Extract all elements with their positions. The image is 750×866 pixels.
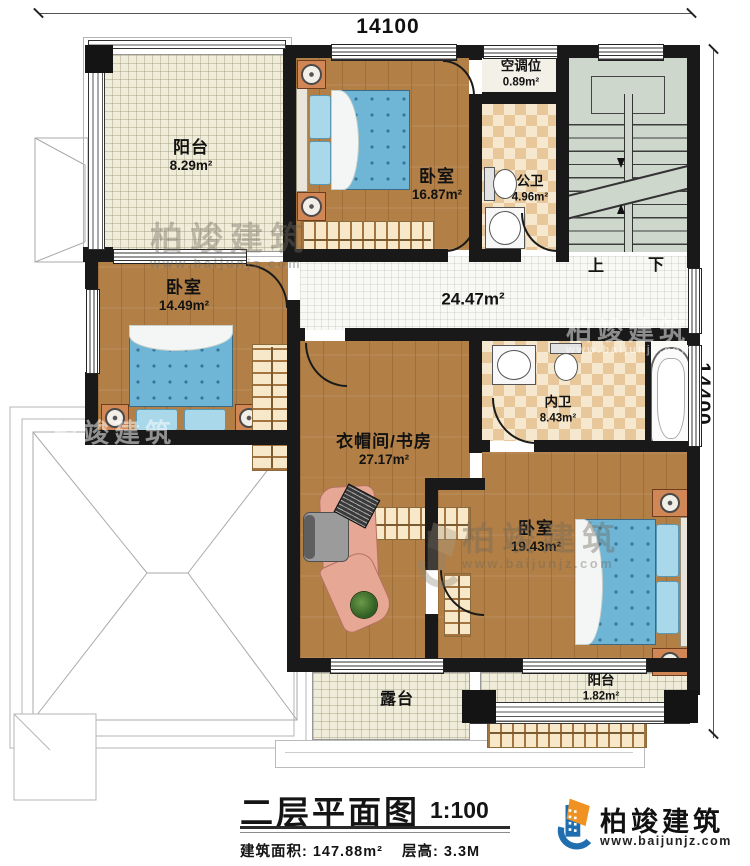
floor-plan-canvas: 14100 14400: [0, 0, 750, 866]
room-name: 卧室: [511, 518, 561, 539]
wall: [442, 658, 522, 672]
label-hallway: 24.47m²: [441, 288, 504, 309]
stair-arrow-up-icon: [617, 204, 625, 214]
wardrobe-bedroom-left: [252, 344, 290, 471]
bottom-left-eave-outline: [10, 710, 100, 805]
brand-logo-icon: [556, 796, 594, 852]
wall: [646, 328, 692, 341]
wall: [295, 328, 305, 341]
room-name: 露台: [380, 690, 414, 710]
window-bedroom-top: [331, 44, 457, 61]
label-bedroom-left: 卧室 14.49m²: [159, 277, 209, 315]
room-name: 空调位: [501, 58, 542, 75]
room-area: 16.87m²: [412, 187, 462, 204]
wall: [469, 45, 482, 60]
label-inner-bath: 内卫 8.43m²: [540, 394, 576, 425]
watermark-logo-icon: [408, 518, 470, 592]
nightstand: [297, 192, 326, 221]
top-dimension-label: 14100: [356, 15, 419, 39]
stair-down-label: 下: [648, 251, 664, 275]
room-area: 8.29m²: [170, 158, 213, 175]
wall: [85, 262, 98, 289]
wall: [556, 45, 569, 262]
label-public-bath: 公卫 4.96m²: [512, 173, 548, 204]
chair-back: [304, 515, 315, 559]
room-area: 24.47m²: [441, 288, 504, 309]
room-name: 阳台: [583, 672, 619, 689]
room-name: 卧室: [159, 277, 209, 298]
stair-arrow-down-icon: [617, 158, 625, 168]
label-ac-slot: 空调位 0.89m²: [501, 58, 542, 89]
lamp-icon: [660, 493, 680, 513]
label-cloakroom-study: 衣帽间/书房 27.17m²: [336, 431, 432, 469]
room-name: 阳台: [170, 137, 213, 158]
lamp-icon: [105, 408, 125, 428]
stair-center-rail: [624, 94, 633, 252]
label-bedroom-top: 卧室 16.87m²: [412, 166, 462, 204]
room-area: 27.17m²: [336, 452, 432, 469]
left-small-roof-outline: [30, 130, 90, 270]
bed-left: [129, 325, 232, 433]
wall: [482, 328, 646, 341]
wall: [469, 341, 482, 453]
build-area-label: 建筑面积: 147.88m²: [240, 840, 383, 861]
wall: [473, 249, 482, 262]
room-area: 0.89m²: [501, 75, 542, 89]
column: [85, 45, 113, 73]
window-stairwell: [598, 44, 664, 61]
wall: [482, 249, 521, 262]
window-bathtub: [688, 345, 702, 447]
bed-top-pillow: [309, 95, 331, 139]
wall: [482, 440, 490, 452]
wall: [646, 441, 690, 452]
nightstand: [652, 489, 688, 517]
bed-br-pillow: [656, 524, 679, 577]
top-dimension-line: [38, 13, 692, 14]
bed-top-headboard: [296, 88, 308, 192]
door-bedroom-top-closet: [443, 60, 475, 96]
nightstand: [297, 60, 326, 89]
wall: [534, 440, 646, 452]
wall: [345, 328, 482, 341]
brand-url: www.baijunjz.com: [600, 834, 732, 848]
bed-left-pillow: [136, 409, 178, 431]
room-name: 卧室: [412, 166, 462, 187]
wall: [687, 45, 700, 268]
wall: [297, 658, 330, 672]
label-balcony-tl: 阳台 8.29m²: [170, 137, 213, 175]
plant-icon: [351, 592, 377, 618]
wall: [469, 94, 482, 262]
room-area: 14.49m²: [159, 298, 209, 315]
title-underline: [240, 826, 510, 833]
office-chair: [303, 512, 349, 562]
label-terrace: 露台: [380, 690, 414, 710]
plan-scale: 1:100: [430, 797, 489, 824]
label-bedroom-br: 卧室 19.43m²: [511, 518, 561, 556]
stairwell: [569, 58, 687, 252]
column: [664, 690, 698, 723]
wall: [85, 430, 300, 445]
room-name: 内卫: [540, 394, 576, 411]
room-area: 1.82m²: [583, 689, 619, 703]
sliding-door-terrace: [330, 658, 444, 674]
wall: [645, 658, 700, 672]
room-area: 8.43m²: [540, 411, 576, 425]
wall: [287, 300, 300, 432]
room-area: 4.96m²: [512, 190, 548, 204]
room-name: 衣帽间/书房: [336, 431, 432, 452]
label-balcony-br: 阳台 1.82m²: [583, 672, 619, 703]
bed-br: [575, 517, 689, 645]
railing-balcony-br: [470, 702, 690, 724]
bathtub-icon: [650, 347, 692, 447]
washbasin-icon: [489, 211, 521, 245]
stair-up-label: 上: [588, 252, 604, 276]
window-ac-slot: [483, 45, 558, 59]
bathtub-inner: [657, 358, 685, 439]
floor-height-label: 层高: 3.3M: [402, 840, 480, 861]
room-name: 公卫: [512, 173, 548, 190]
nightstand: [101, 404, 129, 433]
railing-balcony-tl-left: [88, 52, 105, 250]
railing-balcony-tl-top: [88, 40, 286, 49]
vanity-sink-icon: [497, 350, 531, 380]
toilet-icon: [554, 353, 578, 381]
bed-top: [296, 88, 410, 190]
lamp-icon: [301, 64, 322, 85]
column: [462, 690, 496, 723]
wall: [287, 432, 300, 672]
lamp-icon: [301, 196, 322, 217]
wall: [645, 341, 651, 444]
window-stair-landing: [688, 268, 702, 334]
window-balcony-bedroom-left: [113, 249, 247, 264]
wall: [283, 45, 296, 262]
wall: [295, 249, 448, 262]
window-bedroom-left: [86, 289, 100, 374]
wall: [482, 92, 556, 104]
bed-left-pillow: [184, 409, 226, 431]
bed-br-pillow: [656, 581, 679, 634]
bed-top-pillow: [309, 141, 331, 185]
wall: [425, 478, 485, 490]
room-area: 19.43m²: [511, 539, 561, 556]
